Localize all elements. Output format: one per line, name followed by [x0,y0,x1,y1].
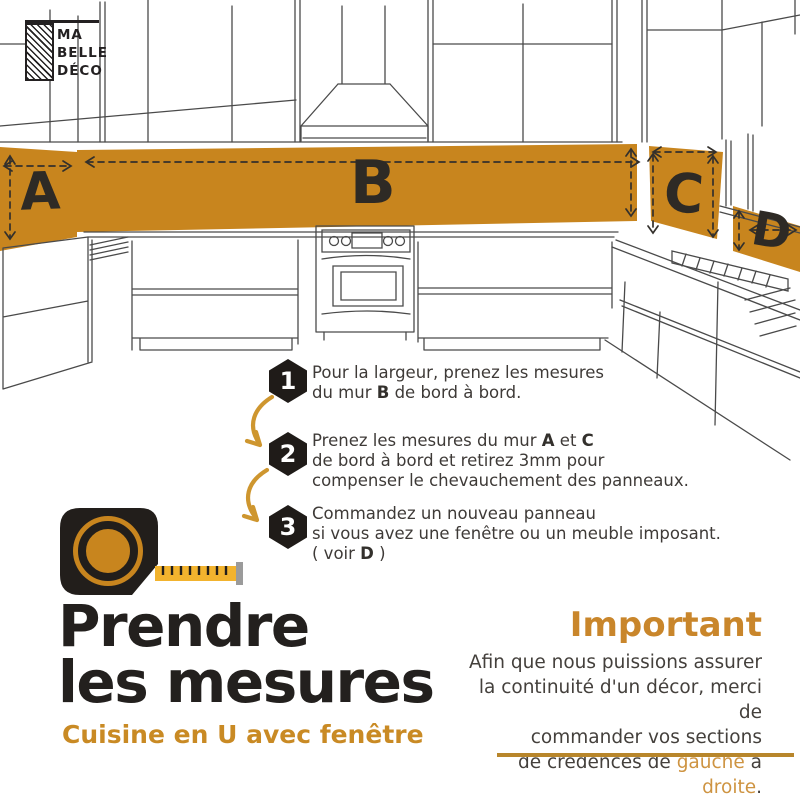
step-1-number: 1 [280,367,297,395]
step-2-text: Prenez les mesures du mur A et C de bord… [312,431,689,491]
brand-logo: MA BELLE DÉCO [57,26,108,80]
zone-label-c: C [662,166,705,223]
page-title: Prendre les mesures [58,598,433,710]
step-2-line3: compenser le chevauchement des panneaux. [312,471,689,491]
brand-line: BELLE [57,44,108,62]
important-note: Important Afin que nous puissions assure… [460,606,762,800]
step-3-line2: si vous avez une fenêtre ou un meuble im… [312,524,721,544]
step-3-number: 3 [280,513,297,541]
brand-line: MA [57,26,108,44]
zone-label-b: B [350,153,396,213]
brand-line: DÉCO [57,62,108,80]
step-3-text: Commandez un nouveau panneau si vous ave… [312,504,721,564]
title-line2: les mesures [58,654,433,710]
step-3-line3: ( voir D ) [312,544,721,564]
zone-label-a: A [19,165,61,218]
step-1-line2: du mur B de bord à bord. [312,383,604,403]
important-line4: de crédences de gauche à droite. [460,750,762,800]
page-subtitle: Cuisine en U avec fenêtre [62,720,424,749]
tape-measure-icon [60,508,243,595]
zone-label-d: D [748,205,795,258]
step-2-line1: Prenez les mesures du mur A et C [312,431,689,451]
infographic-page: MA BELLE DÉCO A B C D 1 Pour la largeur,… [0,0,800,800]
title-line1: Prendre [58,598,433,654]
important-line2: la continuité d'un décor, merci de [460,675,762,725]
important-line1: Afin que nous puissions assurer [460,650,762,675]
important-line3: commander vos sections [460,725,762,750]
important-body: Afin que nous puissions assurer la conti… [460,650,762,800]
highlight-droite: droite [702,777,756,798]
step-3-line1: Commandez un nouveau panneau [312,504,721,524]
step-2-line2: de bord à bord et retirez 3mm pour [312,451,689,471]
step-1-line1: Pour la largeur, prenez les mesures [312,363,604,383]
bottom-gold-rule [497,753,794,757]
step-flow-arrows [244,397,272,520]
step-1-text: Pour la largeur, prenez les mesures du m… [312,363,604,403]
step-2-number: 2 [280,440,297,468]
logo-hatch-icon [25,23,54,81]
important-heading: Important [460,606,762,644]
